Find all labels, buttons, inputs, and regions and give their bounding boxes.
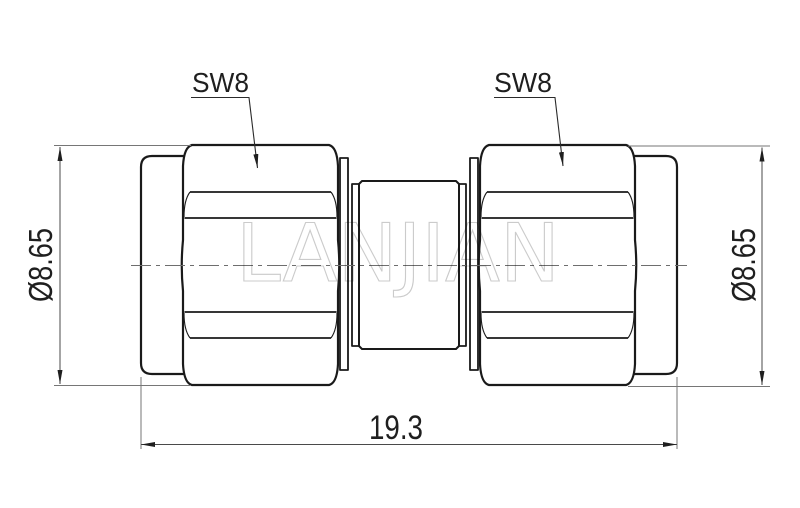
- adapter-technical-drawing: LANJIAN Ø8.65 Ø8.65 19.3 SW8 SW8: [0, 0, 800, 508]
- overall-length-dimension: 19.3: [141, 377, 677, 449]
- watermark-text: LANJIAN: [236, 207, 560, 300]
- right-hex-label: SW8: [494, 67, 552, 98]
- left-hex-label: SW8: [192, 67, 249, 98]
- right-dia-dimension-text: Ø8.65: [725, 228, 762, 302]
- left-dia-dimension-text: Ø8.65: [22, 228, 59, 302]
- technical-drawing-page: LANJIAN Ø8.65 Ø8.65 19.3 SW8 SW8: [0, 0, 800, 508]
- length-dimension-text: 19.3: [369, 409, 423, 447]
